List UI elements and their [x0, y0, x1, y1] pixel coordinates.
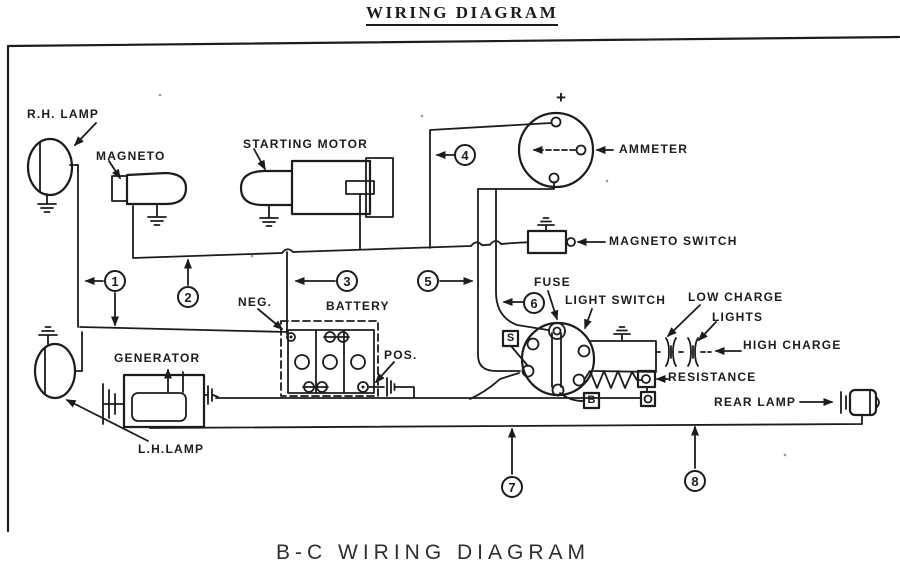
- wire-number-7: 7: [501, 476, 523, 498]
- lights-label: LIGHTS: [712, 310, 763, 324]
- magneto-switch-label: MAGNETO SWITCH: [609, 234, 738, 248]
- lh-lamp-symbol: [35, 327, 148, 441]
- battery-symbol: [258, 309, 394, 396]
- rear-lamp-label: REAR LAMP: [714, 395, 796, 409]
- wire-number-3: 3: [336, 270, 358, 292]
- wire-number-8: 8: [684, 470, 706, 492]
- rear-lamp-symbol: [800, 390, 879, 415]
- battery-negative-label: NEG.: [238, 295, 272, 309]
- generator-label: GENERATOR: [114, 351, 200, 365]
- resistance-label: RESISTANCE: [668, 370, 756, 384]
- diagram-caption: B-C WIRING DIAGRAM: [276, 541, 590, 565]
- wire-number-6: 6: [523, 292, 545, 314]
- battery-label: BATTERY: [326, 299, 390, 313]
- low-charge-label: LOW CHARGE: [688, 290, 783, 304]
- wire-number-5: 5: [417, 270, 439, 292]
- ammeter-label: AMMETER: [619, 142, 688, 156]
- wire-number-2: 2: [177, 286, 199, 308]
- fuse-label: FUSE: [534, 275, 571, 289]
- magneto-symbol: [109, 161, 186, 225]
- wiring-diagram-sheet: WIRING DIAGRAM B-C WIRING DIAGRAM R.H. L…: [0, 0, 900, 584]
- generator-symbol: [103, 370, 218, 428]
- terminal-b-label: B: [584, 393, 599, 408]
- magneto-label: MAGNETO: [96, 149, 166, 163]
- rh-lamp-label: R.H. LAMP: [27, 107, 99, 121]
- starting-motor-symbol: [241, 149, 393, 249]
- lh-lamp-label: L.H.LAMP: [138, 442, 204, 456]
- wire-number-4: 4: [454, 144, 476, 166]
- diagram-frame: [8, 37, 899, 531]
- high-charge-label: HIGH CHARGE: [743, 338, 842, 352]
- light-switch-symbol: [503, 291, 599, 408]
- page-title: WIRING DIAGRAM: [366, 3, 558, 26]
- ammeter-plus-sign: +: [556, 88, 566, 108]
- rh-lamp-symbol: [28, 123, 96, 212]
- terminal-s-label: S: [503, 331, 518, 346]
- magneto-switch-symbol: [528, 218, 605, 253]
- light-switch-label: LIGHT SWITCH: [565, 293, 666, 307]
- starting-motor-label: STARTING MOTOR: [243, 137, 368, 151]
- battery-positive-label: POS.: [384, 348, 417, 362]
- wire-number-1: 1: [104, 270, 126, 292]
